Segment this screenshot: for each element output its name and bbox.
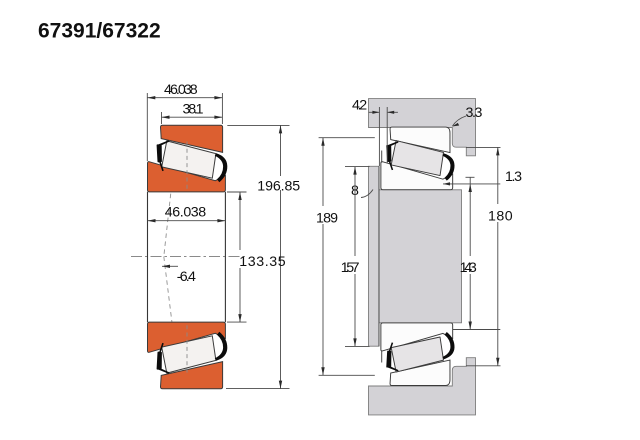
svg-text:133.35: 133.35 [239, 254, 286, 270]
svg-text:-6.4: -6.4 [177, 269, 196, 285]
svg-text:4.2: 4.2 [352, 98, 367, 114]
svg-text:67391/67322: 67391/67322 [38, 20, 161, 43]
svg-text:1.3: 1.3 [505, 169, 522, 185]
svg-text:189: 189 [316, 211, 338, 227]
svg-text:46.038: 46.038 [164, 82, 198, 98]
svg-text:143: 143 [460, 260, 477, 276]
svg-text:180: 180 [488, 209, 513, 225]
svg-text:157: 157 [341, 260, 360, 276]
svg-text:3.3: 3.3 [466, 105, 483, 121]
svg-text:196.85: 196.85 [257, 179, 300, 195]
svg-text:46.038: 46.038 [165, 205, 207, 221]
svg-text:38.1: 38.1 [183, 102, 204, 118]
